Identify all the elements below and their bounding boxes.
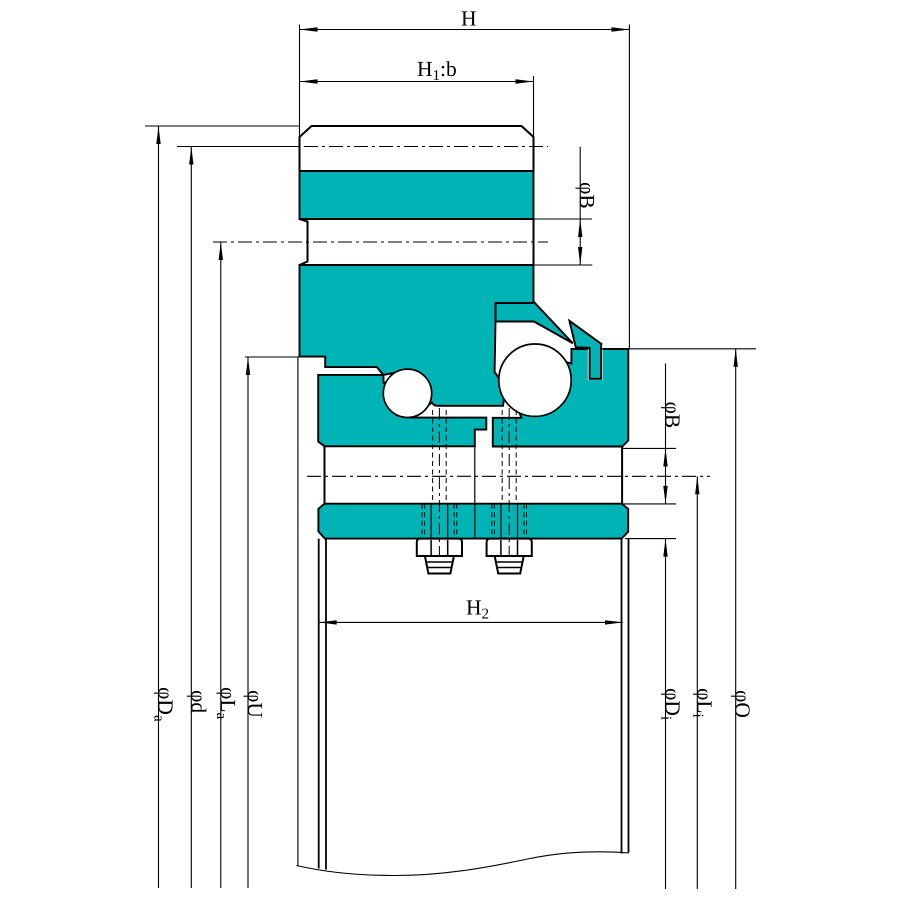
- svg-text:φLi: φLi: [689, 688, 716, 718]
- svg-text:H: H: [461, 7, 477, 31]
- svg-text:φU: φU: [243, 690, 267, 718]
- svg-text:φO: φO: [731, 690, 755, 718]
- svg-text:φB: φB: [575, 182, 599, 209]
- svg-text:φB: φB: [661, 402, 685, 429]
- svg-text:φDi: φDi: [658, 688, 685, 720]
- svg-text:φd: φd: [186, 690, 210, 713]
